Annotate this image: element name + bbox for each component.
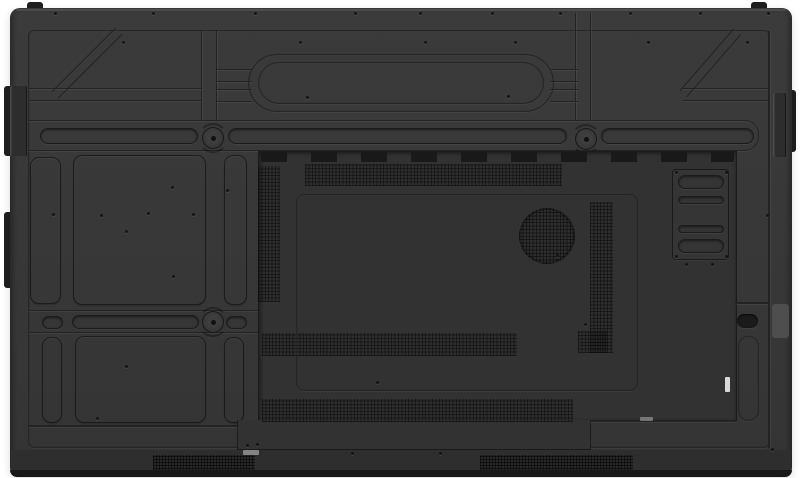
vesa-mount-top-right <box>575 128 597 150</box>
stadium-stub-right-upper <box>550 69 578 82</box>
screw-hole <box>52 213 55 216</box>
vesa-mount-bottom-left <box>202 311 224 333</box>
side-handle-indent <box>772 304 789 338</box>
horizontal-groove-right <box>683 88 770 101</box>
screw-hole <box>419 12 422 15</box>
bottom-band <box>11 450 791 471</box>
bottom-edge-strip <box>10 470 792 477</box>
mount-slot-upper-left <box>40 128 198 144</box>
module-connector-label <box>640 417 653 421</box>
left-edge-rail <box>10 86 27 156</box>
screw-hole <box>507 95 510 98</box>
screw-hole <box>226 189 229 192</box>
screw-hole <box>122 41 125 44</box>
screw-hole <box>100 214 103 217</box>
screw-hole <box>147 212 150 215</box>
panel-section-r2-c <box>224 337 244 423</box>
screw-hole <box>306 96 309 99</box>
screw-hole <box>699 12 702 15</box>
vertical-rib-right <box>575 13 591 121</box>
module-notch-edge <box>590 420 737 422</box>
ops-bracket-slot-1 <box>678 175 724 189</box>
display-rear-panel-photo <box>0 0 800 478</box>
screw-hole <box>711 263 714 266</box>
screw-hole <box>725 171 728 174</box>
screw-hole <box>125 230 128 233</box>
screw-hole <box>172 275 175 278</box>
module-inner-plate <box>296 194 638 391</box>
handle-hole <box>737 314 758 328</box>
vent-grille-left-column <box>258 166 280 302</box>
screw-hole <box>376 381 379 384</box>
screw-hole <box>54 12 57 15</box>
stadium-stub-left-lower <box>216 89 252 102</box>
screw-hole <box>299 41 302 44</box>
vent-grille-top <box>305 164 562 186</box>
right-handle-groove <box>735 302 768 304</box>
screw-hole <box>351 452 354 455</box>
screw-hole <box>246 444 249 447</box>
stadium-stub-left-upper <box>216 69 252 82</box>
mount-slot-lower-small-left <box>42 316 63 329</box>
mount-slot-lower-small-right <box>226 316 247 329</box>
screw-hole <box>629 12 632 15</box>
screw-hole <box>96 417 99 420</box>
screw-hole <box>556 254 559 257</box>
vent-grille-lower <box>262 399 573 422</box>
screw-hole <box>152 12 155 15</box>
screw-hole <box>584 323 587 326</box>
mount-slot-lower-long <box>72 315 199 329</box>
screw-hole <box>192 213 195 216</box>
ops-bracket-slot-4 <box>678 239 724 253</box>
screw-hole <box>354 12 357 15</box>
screw-hole <box>125 365 128 368</box>
left-bottom-groove <box>28 425 259 427</box>
screw-hole <box>647 41 650 44</box>
screw-hole <box>766 214 769 217</box>
screw-hole <box>256 443 259 446</box>
vertical-rib-left <box>201 31 217 121</box>
ops-bracket-slot-2 <box>678 196 724 204</box>
panel-section-r2-a <box>42 337 62 423</box>
io-module-recess-lower <box>237 420 591 450</box>
screw-hole <box>254 12 257 15</box>
vesa-mount-top-left <box>202 127 224 149</box>
panel-section-r1-c <box>224 155 247 305</box>
screw-hole <box>725 255 728 258</box>
mount-slot-upper-right <box>601 128 754 144</box>
screw-hole <box>771 448 774 451</box>
panel-section-r1-b <box>73 155 206 305</box>
speaker-grille-circle <box>519 208 575 264</box>
screw-hole <box>559 12 562 15</box>
mount-slot-upper-center <box>228 128 567 144</box>
screw-hole <box>767 12 770 15</box>
power-switch-connector <box>725 377 730 392</box>
screw-hole <box>675 171 678 174</box>
handle-recess-vertical <box>738 336 759 421</box>
panel-section-r1-a <box>30 157 61 304</box>
screw-hole <box>746 41 749 44</box>
screw-hole <box>171 186 174 189</box>
screw-hole <box>439 452 442 455</box>
panel-section-r2-b <box>75 336 206 423</box>
screw-hole <box>675 255 678 258</box>
screw-hole <box>685 263 688 266</box>
handle-recess-inner <box>258 62 544 104</box>
screw-hole <box>491 12 494 15</box>
stadium-stub-right-lower <box>550 89 578 102</box>
screw-hole <box>514 41 517 44</box>
module-vent-slot-row <box>261 152 734 162</box>
right-panel-seam <box>768 31 770 448</box>
ops-bracket-slot-3 <box>678 225 724 233</box>
right-edge-rail <box>773 93 786 157</box>
panel-top-highlight <box>16 9 786 11</box>
serial-label <box>243 450 259 455</box>
screw-hole <box>424 41 427 44</box>
